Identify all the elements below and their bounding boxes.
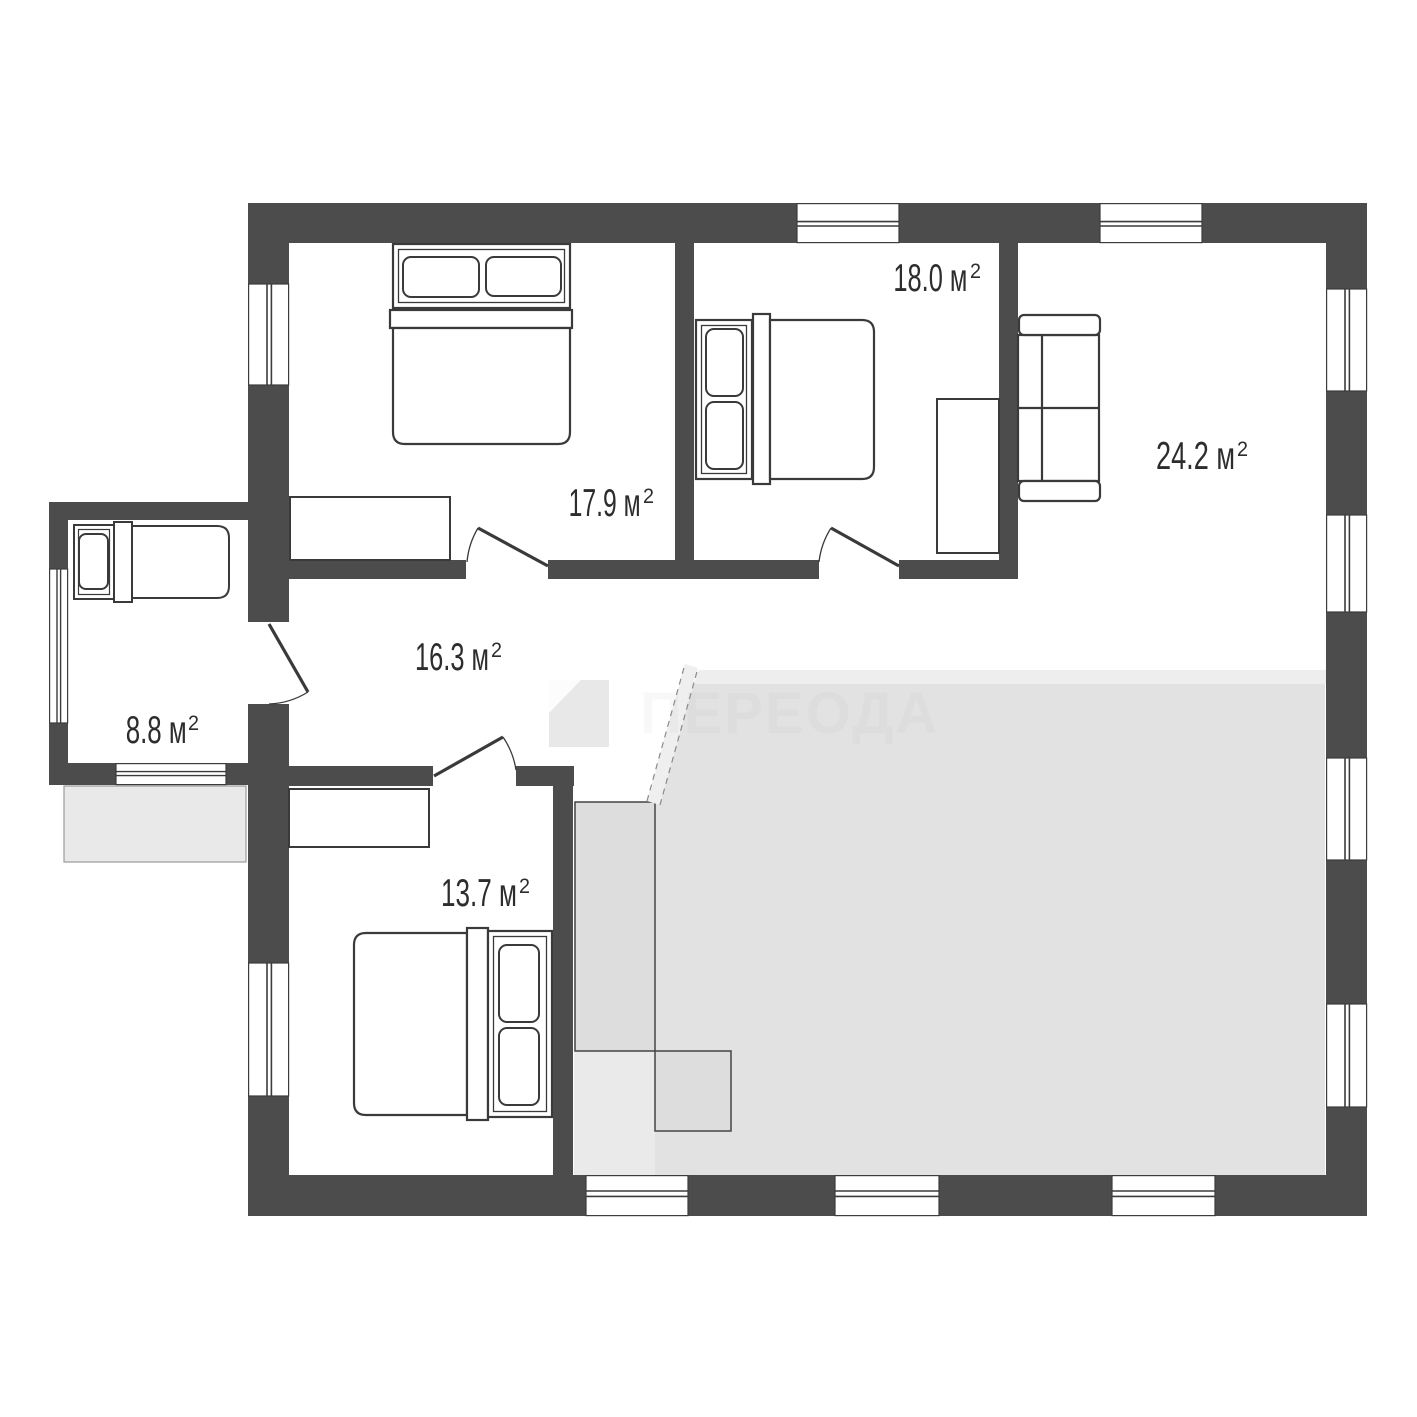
svg-text:18.0 м: 18.0 м xyxy=(893,257,967,300)
svg-text:2: 2 xyxy=(188,712,199,735)
svg-text:2: 2 xyxy=(643,485,654,508)
svg-text:2: 2 xyxy=(519,875,530,898)
svg-text:17.9 м: 17.9 м xyxy=(569,482,641,525)
svg-text:2: 2 xyxy=(491,639,502,662)
svg-text:2: 2 xyxy=(1237,438,1248,461)
svg-text:24.2 м: 24.2 м xyxy=(1156,435,1235,478)
svg-text:2: 2 xyxy=(970,260,981,283)
svg-text:16.3 м: 16.3 м xyxy=(415,636,489,679)
svg-text:ПЕРЕОДА: ПЕРЕОДА xyxy=(640,681,939,746)
svg-text:13.7 м: 13.7 м xyxy=(441,872,517,915)
svg-text:8.8 м: 8.8 м xyxy=(126,709,187,752)
